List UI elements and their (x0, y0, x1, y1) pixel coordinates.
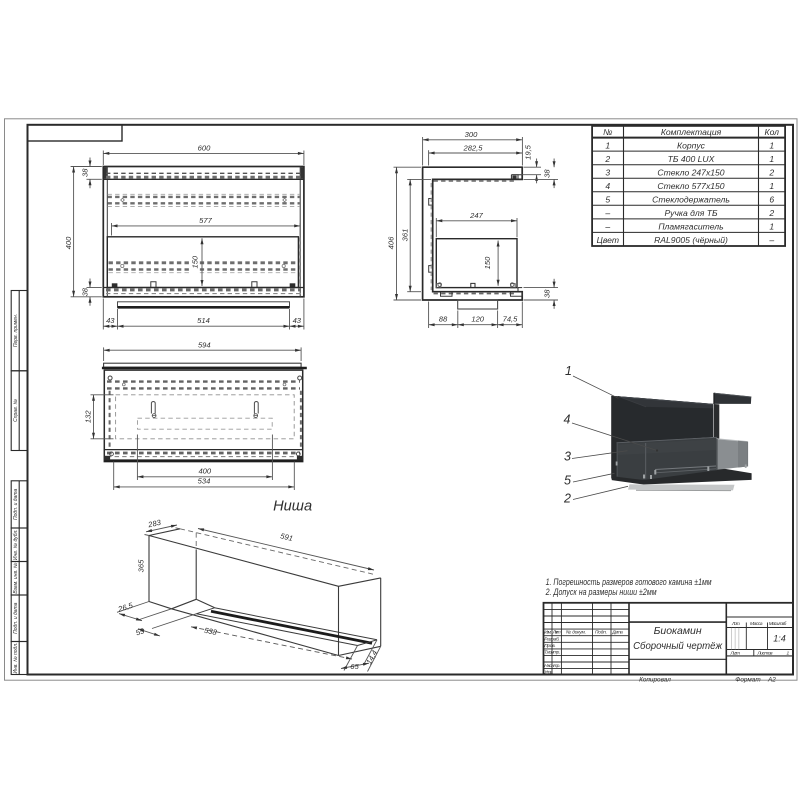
svg-text:Разраб.: Разраб. (544, 637, 560, 643)
svg-text:361: 361 (400, 229, 409, 242)
svg-text:150: 150 (190, 255, 199, 268)
svg-text:43: 43 (106, 316, 115, 325)
svg-text:2: 2 (768, 167, 774, 177)
svg-text:RAL9005 (чёрный): RAL9005 (чёрный) (654, 235, 728, 245)
svg-text:1: 1 (769, 154, 774, 164)
svg-text:Лист: Лист (730, 651, 741, 657)
svg-text:600: 600 (198, 144, 211, 153)
svg-text:3: 3 (564, 450, 571, 464)
svg-text:1: 1 (605, 140, 610, 150)
svg-text:1: 1 (769, 181, 774, 191)
svg-text:–: – (604, 208, 610, 218)
svg-text:19,5: 19,5 (523, 144, 532, 160)
svg-text:5: 5 (605, 195, 610, 205)
svg-text:Пров.: Пров. (544, 643, 556, 649)
svg-text:88: 88 (439, 314, 448, 323)
svg-text:38: 38 (80, 287, 89, 296)
svg-text:Изм.: Изм. (544, 630, 552, 636)
svg-text:Сборочный чертёж: Сборочный чертёж (633, 640, 723, 652)
svg-text:4: 4 (564, 413, 571, 427)
svg-text:534: 534 (198, 477, 211, 486)
svg-text:2: 2 (563, 492, 571, 506)
svg-text:1: 1 (787, 651, 790, 657)
svg-text:Комплектация: Комплектация (661, 127, 722, 137)
svg-text:2: 2 (604, 154, 610, 164)
svg-text:Масса: Масса (750, 621, 763, 627)
svg-text:1. Погрешность размеров готово: 1. Погрешность размеров готового камина … (546, 577, 712, 587)
svg-text:Инв. № подл.: Инв. № подл. (13, 642, 19, 673)
svg-text:Корпус: Корпус (677, 140, 706, 150)
svg-text:Копировал: Копировал (639, 677, 671, 684)
svg-text:Ручка для ТБ: Ручка для ТБ (664, 208, 718, 218)
svg-text:Справ. №: Справ. № (13, 399, 19, 422)
svg-text:–: – (768, 235, 774, 245)
svg-text:Инв. № дубл.: Инв. № дубл. (13, 529, 19, 560)
svg-text:406: 406 (387, 236, 396, 249)
svg-text:Лит.: Лит. (731, 621, 740, 627)
svg-text:№: № (603, 127, 612, 137)
svg-text:Взам. инв. №: Взам. инв. № (13, 562, 19, 594)
svg-text:Стекло 577х150: Стекло 577х150 (657, 181, 724, 191)
svg-text:38: 38 (80, 168, 89, 177)
svg-text:Лист: Лист (552, 630, 561, 636)
svg-text:3: 3 (605, 167, 610, 177)
svg-text:Ниша: Ниша (273, 499, 312, 515)
svg-text:5: 5 (564, 474, 571, 488)
svg-text:43: 43 (293, 316, 302, 325)
svg-text:ТБ 400 LUX: ТБ 400 LUX (668, 154, 715, 164)
svg-text:Цвет: Цвет (597, 235, 619, 245)
svg-text:Стеклодержатель: Стеклодержатель (652, 195, 730, 205)
svg-text:Подп.: Подп. (595, 630, 607, 636)
svg-text:300: 300 (465, 130, 478, 139)
svg-text:А2: А2 (767, 677, 776, 684)
svg-text:132: 132 (84, 410, 93, 423)
svg-text:247: 247 (469, 211, 483, 220)
svg-text:Перв. примен.: Перв. примен. (13, 314, 19, 347)
svg-text:4: 4 (605, 181, 610, 191)
svg-text:400: 400 (64, 236, 73, 249)
svg-text:Пламягаситель: Пламягаситель (658, 222, 724, 232)
svg-text:1:4: 1:4 (773, 634, 786, 644)
svg-text:6: 6 (769, 195, 774, 205)
svg-text:65: 65 (350, 662, 359, 671)
svg-text:120: 120 (471, 314, 484, 323)
svg-text:514: 514 (197, 316, 210, 325)
svg-text:Н.контр.: Н.контр. (544, 663, 560, 669)
svg-text:365: 365 (136, 559, 145, 572)
svg-text:1: 1 (769, 140, 774, 150)
svg-text:2. Допуск на размеры ниши ±2мм: 2. Допуск на размеры ниши ±2мм (545, 587, 657, 597)
svg-text:Стекло 247х150: Стекло 247х150 (657, 167, 724, 177)
svg-text:№ докум.: № докум. (566, 630, 586, 636)
svg-text:Подп. и дата: Подп. и дата (13, 489, 19, 521)
svg-text:Биокамин: Биокамин (654, 626, 702, 637)
svg-text:74,5: 74,5 (503, 314, 519, 323)
svg-text:Формат: Формат (735, 677, 761, 684)
svg-text:400: 400 (198, 466, 211, 475)
svg-text:594: 594 (198, 340, 211, 349)
svg-text:38: 38 (542, 169, 551, 178)
svg-text:Дата: Дата (611, 630, 623, 636)
svg-text:Листов: Листов (757, 651, 773, 657)
svg-text:282,5: 282,5 (462, 143, 483, 152)
svg-text:150: 150 (483, 256, 492, 269)
svg-text:577: 577 (199, 216, 212, 225)
svg-text:1: 1 (565, 364, 572, 378)
svg-text:Масштаб: Масштаб (769, 621, 787, 627)
svg-text:2: 2 (768, 208, 774, 218)
svg-text:38: 38 (542, 289, 551, 298)
svg-text:Т.контр.: Т.контр. (544, 650, 560, 656)
svg-text:Подп. и дата: Подп. и дата (13, 602, 19, 634)
svg-text:–: – (604, 222, 610, 232)
svg-text:Утв.: Утв. (544, 669, 553, 675)
svg-text:1: 1 (769, 222, 774, 232)
svg-text:Кол: Кол (765, 127, 780, 137)
